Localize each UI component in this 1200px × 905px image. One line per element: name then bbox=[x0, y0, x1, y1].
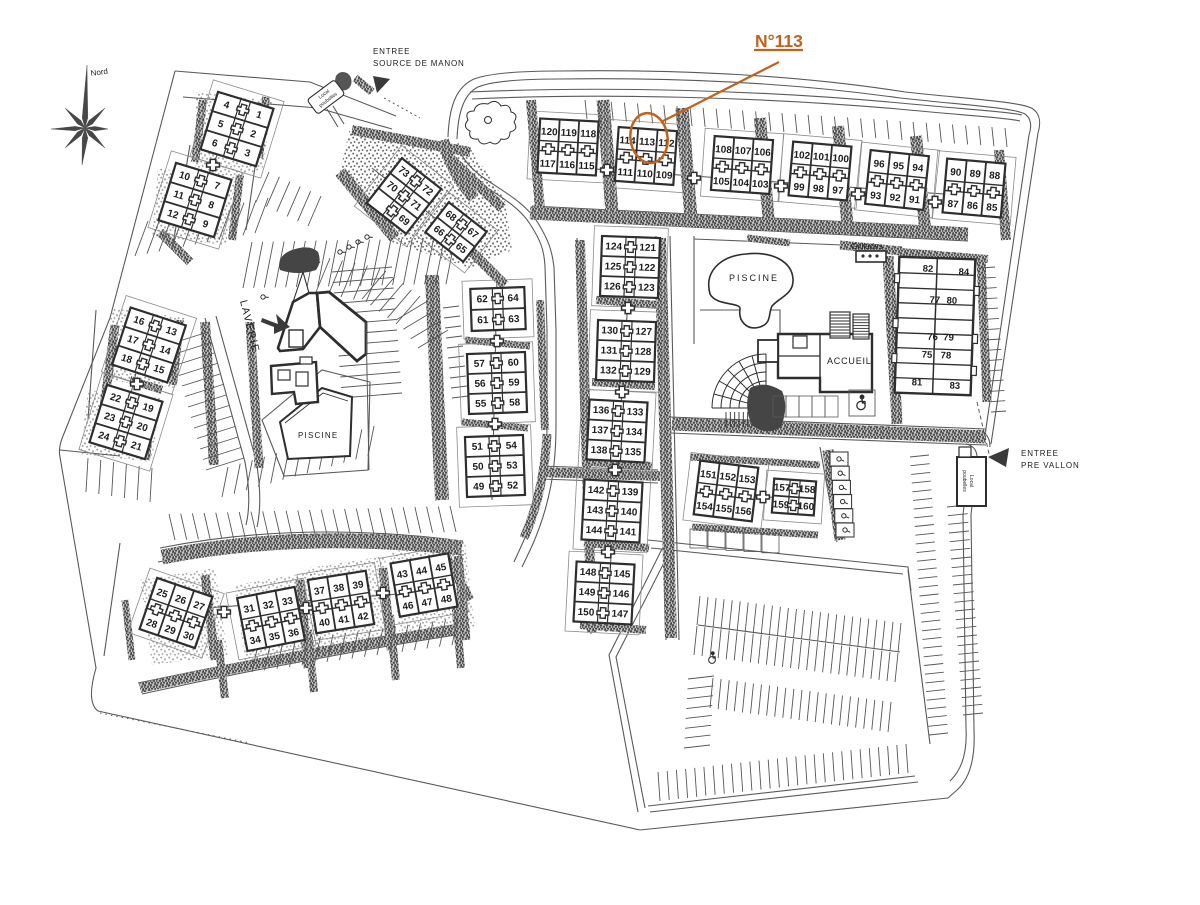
svg-text:63: 63 bbox=[508, 314, 520, 325]
svg-text:142: 142 bbox=[587, 485, 605, 497]
svg-text:56: 56 bbox=[474, 379, 486, 390]
svg-text:87: 87 bbox=[947, 199, 959, 211]
svg-text:90: 90 bbox=[950, 167, 962, 179]
svg-text:125: 125 bbox=[604, 261, 621, 273]
svg-text:152: 152 bbox=[719, 471, 737, 484]
svg-text:145: 145 bbox=[613, 569, 631, 581]
svg-text:N°113: N°113 bbox=[755, 31, 803, 51]
svg-text:131: 131 bbox=[600, 345, 617, 357]
svg-text:55: 55 bbox=[475, 399, 487, 410]
svg-text:76: 76 bbox=[927, 332, 938, 343]
svg-text:110: 110 bbox=[636, 168, 653, 180]
svg-text:97: 97 bbox=[832, 185, 844, 197]
svg-text:158: 158 bbox=[798, 484, 816, 496]
svg-text:SOURCE DE MANON: SOURCE DE MANON bbox=[373, 59, 465, 68]
svg-text:96: 96 bbox=[873, 158, 886, 170]
svg-text:ENTREE: ENTREE bbox=[373, 47, 410, 56]
svg-text:105: 105 bbox=[713, 176, 731, 188]
svg-text:98: 98 bbox=[812, 183, 824, 195]
svg-text:160: 160 bbox=[797, 501, 815, 513]
svg-text:38: 38 bbox=[333, 582, 346, 595]
svg-text:53: 53 bbox=[506, 460, 518, 471]
svg-text:91: 91 bbox=[908, 194, 921, 206]
svg-text:123: 123 bbox=[638, 282, 655, 294]
svg-text:121: 121 bbox=[639, 243, 656, 255]
svg-text:153: 153 bbox=[738, 474, 756, 487]
svg-text:126: 126 bbox=[604, 281, 621, 293]
svg-text:75: 75 bbox=[921, 350, 933, 361]
svg-text:PISCINE: PISCINE bbox=[729, 273, 779, 283]
svg-text:139: 139 bbox=[621, 487, 639, 499]
svg-text:64: 64 bbox=[507, 293, 519, 304]
svg-text:85: 85 bbox=[986, 202, 998, 214]
svg-text:39: 39 bbox=[352, 579, 365, 592]
svg-text:PRE VALLON: PRE VALLON bbox=[1021, 461, 1080, 470]
svg-text:41: 41 bbox=[338, 614, 351, 627]
svg-text:103: 103 bbox=[751, 179, 769, 191]
svg-text:62: 62 bbox=[476, 294, 488, 305]
svg-text:129: 129 bbox=[634, 366, 651, 378]
svg-text:135: 135 bbox=[624, 447, 642, 459]
svg-text:54: 54 bbox=[506, 440, 518, 451]
svg-text:138: 138 bbox=[590, 445, 608, 457]
svg-text:137: 137 bbox=[591, 425, 609, 437]
svg-text:78: 78 bbox=[940, 350, 951, 361]
svg-text:50: 50 bbox=[472, 462, 484, 473]
svg-text:120: 120 bbox=[541, 127, 559, 139]
svg-text:151: 151 bbox=[699, 469, 717, 482]
svg-text:109: 109 bbox=[655, 170, 673, 182]
svg-text:95: 95 bbox=[892, 161, 905, 173]
svg-text:136: 136 bbox=[592, 405, 610, 417]
svg-text:93: 93 bbox=[870, 190, 883, 202]
svg-text:122: 122 bbox=[638, 263, 655, 275]
svg-text:113: 113 bbox=[639, 136, 656, 148]
svg-text:37: 37 bbox=[313, 585, 326, 598]
svg-text:144: 144 bbox=[585, 525, 603, 537]
svg-text:88: 88 bbox=[989, 170, 1001, 182]
svg-text:82: 82 bbox=[922, 264, 933, 275]
svg-text:111: 111 bbox=[617, 167, 634, 179]
svg-text:58: 58 bbox=[509, 397, 521, 408]
svg-text:150: 150 bbox=[577, 607, 595, 619]
svg-text:114: 114 bbox=[619, 135, 636, 147]
svg-text:40: 40 bbox=[318, 617, 331, 630]
svg-text:101: 101 bbox=[812, 151, 830, 163]
svg-text:94: 94 bbox=[912, 163, 925, 175]
svg-text:134: 134 bbox=[625, 427, 643, 439]
svg-text:115: 115 bbox=[578, 161, 595, 173]
svg-text:59: 59 bbox=[508, 377, 520, 388]
svg-text:140: 140 bbox=[620, 507, 638, 519]
svg-text:143: 143 bbox=[586, 505, 604, 517]
svg-text:119: 119 bbox=[560, 128, 577, 140]
svg-text:83: 83 bbox=[949, 381, 960, 392]
svg-text:128: 128 bbox=[634, 347, 651, 359]
svg-text:60: 60 bbox=[508, 357, 520, 368]
svg-text:148: 148 bbox=[579, 567, 597, 579]
svg-text:Grillades: Grillades bbox=[851, 242, 883, 251]
svg-text:77: 77 bbox=[929, 295, 940, 306]
svg-text:86: 86 bbox=[966, 200, 978, 212]
svg-text:Local: Local bbox=[968, 475, 974, 487]
svg-text:80: 80 bbox=[946, 295, 957, 306]
svg-text:155: 155 bbox=[715, 503, 733, 516]
svg-text:107: 107 bbox=[734, 145, 752, 157]
svg-text:92: 92 bbox=[889, 192, 902, 204]
svg-text:146: 146 bbox=[612, 589, 630, 601]
svg-text:51: 51 bbox=[472, 442, 484, 453]
svg-text:99: 99 bbox=[793, 182, 805, 194]
svg-text:42: 42 bbox=[357, 611, 370, 624]
svg-text:57: 57 bbox=[474, 359, 486, 370]
svg-text:147: 147 bbox=[611, 609, 629, 621]
svg-text:141: 141 bbox=[619, 527, 637, 539]
svg-text:52: 52 bbox=[507, 480, 519, 491]
svg-text:ACCUEIL: ACCUEIL bbox=[827, 356, 872, 366]
svg-text:118: 118 bbox=[580, 129, 597, 141]
svg-text:ENTREE: ENTREE bbox=[1021, 449, 1059, 458]
svg-text:79: 79 bbox=[943, 332, 954, 343]
svg-text:81: 81 bbox=[911, 377, 923, 388]
svg-text:102: 102 bbox=[793, 150, 811, 162]
svg-text:104: 104 bbox=[732, 177, 750, 189]
svg-text:154: 154 bbox=[695, 501, 713, 514]
svg-text:108: 108 bbox=[715, 144, 733, 156]
svg-text:84: 84 bbox=[958, 267, 970, 278]
svg-text:127: 127 bbox=[635, 327, 652, 339]
svg-text:149: 149 bbox=[578, 587, 596, 599]
svg-text:100: 100 bbox=[832, 153, 850, 165]
svg-text:133: 133 bbox=[626, 407, 644, 419]
svg-text:89: 89 bbox=[969, 169, 981, 181]
svg-text:132: 132 bbox=[600, 365, 617, 377]
svg-text:130: 130 bbox=[601, 325, 618, 337]
svg-text:117: 117 bbox=[539, 159, 556, 171]
svg-text:116: 116 bbox=[559, 160, 576, 172]
svg-text:156: 156 bbox=[734, 505, 752, 518]
svg-text:PISCINE: PISCINE bbox=[298, 431, 338, 440]
svg-text:49: 49 bbox=[473, 482, 485, 493]
svg-text:124: 124 bbox=[605, 241, 622, 253]
svg-text:106: 106 bbox=[754, 147, 772, 159]
svg-text:poubelles: poubelles bbox=[961, 470, 967, 492]
svg-text:61: 61 bbox=[477, 315, 489, 326]
